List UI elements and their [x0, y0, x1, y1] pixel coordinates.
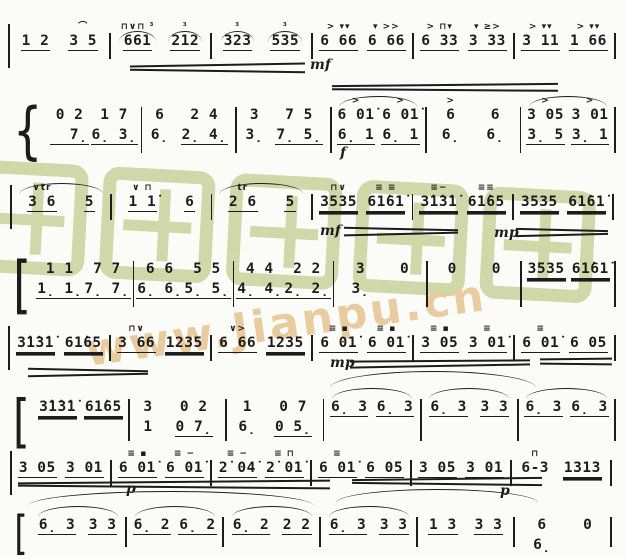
note-numbers: 3 01: [65, 460, 104, 478]
articulation-mark: ≡ ▪: [127, 449, 147, 460]
note-group: > ⊓▾6 33: [420, 22, 459, 51]
note-numbers: 6̣ 3: [329, 517, 367, 535]
measure: ∨tr3 65: [12, 183, 111, 212]
note-numbers: 6̣ 3: [570, 399, 608, 417]
note-group: 66̣: [532, 506, 552, 554]
music-system: {0 2 7̣1 76̣ 3̣66̣2 42̣ 4̣33̣7 57̣ 5̣>6 …: [8, 96, 616, 162]
measure: 6 66̣ 6̣5 55̣ 5̣: [134, 250, 232, 299]
note-numbers: 3 66: [117, 335, 156, 353]
note-numbers: 5: [284, 194, 295, 212]
measure: 3 053 01: [412, 449, 510, 478]
measure: 6̣ 33 3: [321, 506, 416, 535]
articulation-mark: ≡ ▪: [376, 324, 396, 335]
note-numbers-lower-voice: 4̣ 4̣: [236, 281, 283, 299]
articulation-mark: ≡≡: [478, 183, 495, 194]
measure: 33̣7 57̣ 5̣: [237, 96, 330, 145]
crescendo-line: [332, 83, 558, 87]
note-group: ▾ ≥>3 33: [468, 22, 507, 51]
note-numbers: 61̇61̇: [567, 194, 606, 212]
note-group: ≡3 01̇: [468, 324, 507, 353]
note-group: 61̇61̇: [567, 183, 606, 212]
note-numbers: 2 4: [189, 107, 219, 124]
note-numbers: 6 01̇: [381, 107, 420, 124]
articulation-mark: ≡−: [430, 183, 447, 194]
measure: 3̇1̇3̇1̇61̇65: [10, 324, 109, 353]
measure: ⊓∨3535≡ ≡61̇61̇: [313, 183, 412, 212]
note-numbers: 2 2: [282, 517, 312, 535]
measure: >66̣66̣: [427, 96, 520, 144]
note-group: ∨>6 66: [218, 324, 257, 353]
note-numbers: 2 2: [292, 261, 322, 278]
note-numbers: 6: [184, 194, 195, 212]
measure: 6̣ 33 3: [30, 506, 125, 535]
note-numbers: 6 33: [420, 33, 459, 51]
note-numbers: 6̣ 2: [232, 517, 270, 535]
note-group: 33̣: [350, 250, 370, 298]
measure: 3̇1̇3̇1̇61̇65: [33, 388, 129, 417]
note-numbers: 6 01̇: [337, 107, 376, 124]
measure: ≡ ▪3 05≡3 01̇: [414, 324, 513, 353]
measure: 353561̇61̇: [522, 250, 614, 279]
note-group: ³323: [223, 22, 253, 51]
note-group: ⊓∨3535: [319, 183, 358, 212]
note-numbers: 1 3: [428, 517, 458, 535]
note-numbers: 3 05: [420, 335, 459, 353]
note-numbers: 1 66: [569, 33, 608, 51]
note-numbers-lower-voice: 6̣: [485, 127, 505, 144]
note-numbers: 3 01: [571, 107, 610, 124]
note-group: ⊓6-3: [520, 449, 550, 477]
note-group: 3535: [527, 250, 566, 279]
articulation-mark: ⊓∨: [128, 324, 144, 335]
note-numbers-lower-voice: 3̣ 5: [526, 127, 564, 145]
note-numbers: 5: [84, 194, 95, 212]
note-group: 2 42̣ 4̣: [181, 96, 228, 145]
measure: 6̣ 22 2: [224, 506, 319, 535]
note-group: ∨ ⊓1 1̇: [128, 183, 158, 212]
note-group: ≡ ≡61̇61̇: [366, 183, 405, 212]
note-numbers: 1235: [165, 335, 204, 353]
note-numbers-lower-voice: 7̣: [50, 127, 88, 145]
measure: ≡6 01̇6 05: [312, 449, 410, 478]
note-group: 6: [184, 183, 195, 212]
note-group: ≡6 01̇: [521, 324, 560, 353]
barline: [610, 517, 612, 547]
note-numbers: 0: [582, 517, 593, 534]
note-numbers: 6̣ 3: [429, 399, 467, 417]
articulation-mark: ≡ ≡: [375, 183, 396, 194]
note-numbers: 2̇ 01̇: [265, 460, 304, 478]
note-group: 0: [447, 250, 458, 278]
note-group: 33̣: [244, 96, 264, 144]
note-numbers: 6 01̇: [318, 460, 357, 478]
system-bracket: [: [13, 392, 30, 450]
note-numbers: 6̣ 2: [133, 517, 171, 535]
articulation-mark: ≡ ▪: [329, 324, 349, 335]
note-group: 3̇1̇3̇1̇: [16, 324, 55, 353]
articulation-mark: ∨>: [229, 324, 246, 335]
note-group: 0 70 5̣: [274, 388, 312, 437]
note-group: 66̣: [485, 96, 505, 144]
dynamic-mark: p: [126, 482, 136, 496]
measure: > ▾▾3 11> ▾▾1 66: [515, 22, 614, 51]
measure: ≡6 01̇6 05: [515, 324, 614, 353]
note-group: 5 55̣ 5̣: [183, 250, 230, 299]
measure: 4 44̣ 4̣2 22̣ 2̣: [234, 250, 332, 299]
measure: tr2 65: [212, 183, 311, 212]
note-numbers: 0: [491, 261, 502, 278]
note-group: 3535: [520, 183, 559, 212]
system-bracket: [: [14, 510, 27, 556]
note-group: ▾ >>6 66: [367, 22, 406, 51]
note-numbers: 61̇65: [467, 194, 506, 212]
note-numbers: 1313: [563, 460, 602, 478]
measure: > ▾▾6 66▾ >>6 66: [313, 22, 412, 51]
note-numbers: 6: [536, 517, 547, 534]
note-numbers-lower-voice: 7̣ 7̣: [83, 281, 130, 299]
barline: [610, 460, 612, 486]
note-group: 1235: [266, 324, 305, 353]
note-group: 3 01: [465, 449, 504, 478]
note-group: ⊓∨3 66: [117, 324, 156, 353]
note-numbers: 3: [142, 399, 153, 416]
measure: 33̣0: [334, 250, 426, 298]
note-group: 61̇65: [64, 324, 103, 353]
note-numbers-lower-voice: 3̣: [350, 281, 370, 298]
articulation-mark: ▾ ≥>: [474, 22, 501, 33]
measure: > ⊓▾6 33▾ ≥>3 33: [414, 22, 513, 51]
note-numbers-lower-voice: 5̣ 5̣: [183, 281, 230, 299]
articulation-mark: ≡: [333, 449, 342, 460]
measure: ⊓6-31313: [512, 449, 610, 478]
note-numbers: 61̇65: [84, 399, 123, 417]
note-numbers-lower-voice: 6̣: [441, 127, 461, 144]
note-numbers: 4 4: [245, 261, 275, 278]
note-numbers: 6 6: [145, 261, 175, 278]
note-numbers-lower-voice: 6̣ 1: [337, 127, 375, 145]
note-group: ≡ ▪6 01̇: [367, 324, 406, 353]
note-group: 3 3: [474, 506, 504, 535]
note-group: ⊓∨⊓ ³661: [121, 22, 155, 51]
note-group: ⌒3 5: [68, 22, 98, 51]
measure: 66̣0: [515, 506, 610, 554]
measure: 310 20 7̣: [130, 388, 226, 437]
note-numbers: 3535: [520, 194, 559, 212]
note-numbers: 6 66: [218, 335, 257, 353]
note-numbers: 3 01: [465, 460, 504, 478]
note-numbers: 61̇65: [64, 335, 103, 353]
dynamic-mark: mp: [330, 356, 355, 370]
measure: 0 2 7̣1 76̣ 3̣: [47, 96, 140, 145]
measure: ⊓∨⊓ ³661³212: [111, 22, 210, 51]
measure: ≡ −2̇ 04̇≡ ⊓2̇ 01̇: [212, 449, 310, 478]
note-numbers: 3 33: [468, 33, 507, 51]
note-group: ³212: [170, 22, 200, 51]
note-group: 6 66̣ 6̣: [136, 250, 183, 299]
note-numbers: 6̣ 3: [330, 399, 368, 417]
measure: 6̣ 36̣ 3: [519, 388, 615, 417]
measure: ³323³535: [212, 22, 311, 51]
note-group: 1313: [563, 449, 602, 478]
note-numbers-lower-voice: 6̣ 1: [381, 127, 419, 145]
measure: 6̣ 36̣ 3: [324, 388, 420, 417]
note-group: >66̣: [441, 96, 461, 144]
measure: ≡−3̇1̇3̇1̇≡≡61̇65: [413, 183, 512, 212]
note-numbers: 1 2: [21, 33, 51, 51]
note-numbers: 5 5: [192, 261, 222, 278]
note-numbers: 6̣ 2: [178, 517, 216, 535]
barline: [614, 399, 616, 441]
barline: [614, 107, 616, 153]
note-numbers: 2 6: [228, 194, 258, 212]
note-numbers: 6: [445, 107, 456, 124]
measure: ∨ ⊓1 1̇6: [112, 183, 211, 212]
note-numbers: 1 1̇: [128, 194, 158, 212]
measure: 353561̇61̇: [514, 183, 613, 212]
note-numbers: 3 05: [526, 107, 565, 124]
note-group: > ▾▾3 11: [521, 22, 560, 51]
articulation-mark: > ▾▾: [529, 22, 553, 33]
note-group: 1 2: [21, 22, 51, 51]
note-numbers-lower-voice: 3̣ 1: [571, 127, 609, 145]
note-group: ≡ −6 01̇: [165, 449, 204, 478]
note-numbers: 6 66: [367, 33, 406, 51]
note-numbers: 7 7: [92, 261, 122, 278]
note-group: 1235: [165, 324, 204, 353]
note-numbers: 3 3: [474, 517, 504, 535]
note-numbers: 6-3: [520, 460, 550, 477]
phrase-arc: [330, 371, 536, 388]
crescendo-line: [28, 373, 148, 377]
note-group: 3 05: [418, 449, 457, 478]
note-numbers: 0 2: [55, 107, 85, 124]
sheet-music-page: 歌谱简谱网 www.Jianpu.cn 1 2⌒3 5⊓∨⊓ ³661³212³…: [0, 0, 627, 559]
articulation-mark: ⌒: [78, 22, 88, 33]
system-bracket: {: [13, 100, 43, 162]
note-numbers: 2̇ 04̇: [218, 460, 257, 478]
articulation-mark: ⊓∨: [330, 183, 346, 194]
note-numbers: 6 01̇: [367, 335, 406, 353]
note-numbers-lower-voice: 0 7̣: [175, 419, 213, 437]
note-numbers: 7 5: [284, 107, 314, 124]
note-group: ³535: [270, 22, 300, 51]
measure: >3 053̣ 5>3 013̣ 1: [521, 96, 614, 145]
note-group: 3 05: [18, 449, 57, 478]
measure: 00: [428, 250, 520, 278]
articulation-mark: > ⊓▾: [427, 22, 453, 33]
articulation-mark: ≡: [483, 324, 492, 335]
note-numbers: 3: [355, 261, 366, 278]
note-numbers: 1: [242, 399, 253, 416]
note-numbers: 3535: [527, 261, 566, 279]
measure: ∨>6 661235: [212, 324, 311, 353]
barline: [612, 194, 614, 220]
note-group: ≡−3̇1̇3̇1̇: [419, 183, 458, 212]
note-numbers: 3 3: [379, 517, 409, 535]
note-numbers: 3: [249, 107, 260, 124]
note-group: 7 57̣ 5̣: [275, 96, 322, 145]
note-group: ≡6 01̇: [318, 449, 357, 478]
note-numbers: 6 01̇: [521, 335, 560, 353]
note-group: 61̇65: [84, 388, 123, 417]
note-numbers: 6̣ 3: [376, 399, 414, 417]
note-group: 1 76̣ 3̣: [91, 96, 138, 145]
note-numbers: 6: [490, 107, 501, 124]
note-numbers: 6 66: [319, 33, 358, 51]
note-numbers-lower-voice: 6̣ 3̣: [91, 127, 138, 145]
note-numbers: 61̇61̇: [571, 261, 610, 279]
note-numbers: 3 6: [27, 194, 57, 212]
note-group: ≡ ▪6 01̇: [118, 449, 157, 478]
dynamic-mark: mf: [320, 224, 341, 238]
barline: [614, 335, 616, 361]
note-group: 2 22̣ 2̣: [283, 250, 330, 299]
note-numbers-lower-voice: 6̣: [532, 537, 552, 554]
note-numbers-lower-voice: 1̣ 1̣: [36, 281, 83, 299]
measure: 6̣ 33 3: [422, 388, 518, 417]
measure: 1 33 3: [418, 506, 513, 535]
measure: 16̣0 70 5̣: [227, 388, 323, 437]
note-group: 1 3: [428, 506, 458, 535]
note-numbers: 0: [447, 261, 458, 278]
note-group: 7 77̣ 7̣: [83, 250, 130, 299]
note-group: > ▾▾1 66: [569, 22, 608, 51]
measure: >6 01̇6̣ 1>6 01̇6̣ 1: [332, 96, 425, 145]
note-numbers-lower-voice: 2̣ 2̣: [283, 281, 330, 299]
note-numbers-lower-voice: 1: [142, 419, 153, 436]
articulation-mark: ▾ >>: [373, 22, 400, 33]
note-numbers: 6̣ 3: [524, 399, 562, 417]
note-numbers: 3̇1̇3̇1̇: [38, 399, 77, 417]
note-group: 0 2 7̣: [50, 96, 88, 145]
note-numbers: 3 11: [521, 33, 560, 51]
dynamic-mark: mf: [310, 58, 331, 72]
note-numbers: 3 05: [18, 460, 57, 478]
note-group: 31: [142, 388, 153, 436]
note-group: 16̣: [237, 388, 257, 436]
note-numbers: 1 1: [45, 261, 75, 278]
note-numbers: 3535: [319, 194, 358, 212]
note-numbers: 6 05: [365, 460, 404, 478]
note-numbers-lower-voice: 6̣: [237, 419, 257, 436]
note-numbers: 3̇1̇3̇1̇: [16, 335, 55, 353]
articulation-mark: ⊓: [531, 449, 539, 460]
note-numbers: 6 05: [569, 335, 608, 353]
note-group: 0: [491, 250, 502, 278]
measure: 66̣2 42̣ 4̣: [142, 96, 235, 145]
note-numbers: 3 05: [418, 460, 457, 478]
note-numbers: 0 7: [278, 399, 308, 416]
note-group: 66̣: [150, 96, 170, 144]
note-numbers: 6: [154, 107, 165, 124]
system-bracket: [: [13, 254, 31, 316]
note-numbers: 1235: [266, 335, 305, 353]
note-numbers-lower-voice: 6̣: [150, 127, 170, 144]
note-numbers: 6 01̇: [165, 460, 204, 478]
dynamic-mark: p: [500, 484, 510, 498]
articulation-mark: ≡ ▪: [430, 324, 450, 335]
note-numbers: 3 3: [480, 399, 510, 417]
dynamic-mark: f: [340, 146, 346, 160]
articulation-mark: ≡: [536, 324, 545, 335]
music-system: ∨tr3 65∨ ⊓1 1̇6tr2 65⊓∨3535≡ ≡61̇61̇≡−3̇…: [10, 183, 614, 229]
note-group: 4 44̣ 4̣: [236, 250, 283, 299]
note-group: 0: [399, 250, 410, 278]
note-numbers: 1 7: [99, 107, 129, 124]
measure: 1 2⌒3 5: [10, 22, 109, 51]
measure: 3 053 01: [12, 449, 110, 478]
barline: [614, 261, 616, 307]
note-numbers: 6̣ 3: [38, 517, 76, 535]
crescendo-line: [332, 88, 558, 91]
note-numbers: 3 3: [88, 517, 118, 535]
articulation-mark: > ▾▾: [577, 22, 601, 33]
measure: ⊓∨3 661235: [111, 324, 210, 353]
articulation-mark: ≡ ⊓: [274, 449, 295, 460]
note-group: 0: [582, 506, 593, 534]
articulation-mark: ∨ ⊓: [132, 183, 153, 194]
music-system: [6̣ 33 36̣ 26̣ 26̣ 22 26̣ 33 31 33 366̣0: [12, 506, 612, 556]
note-numbers: 3̇1̇3̇1̇: [419, 194, 458, 212]
note-group: ≡ ▪3 05: [420, 324, 459, 353]
barline: [614, 33, 616, 59]
note-group: 3 01: [65, 449, 104, 478]
articulation-mark: ≡ −: [227, 449, 248, 460]
note-numbers-lower-voice: 2̣ 4̣: [181, 127, 228, 145]
note-group: 6 05: [569, 324, 608, 353]
note-group: > ▾▾6 66: [319, 22, 358, 51]
note-numbers: 0: [399, 261, 410, 278]
note-numbers: 3 5: [68, 33, 98, 51]
note-numbers: 0 2: [179, 399, 209, 416]
measure: ≡ ▪6 01̇≡ −6 01̇: [112, 449, 210, 478]
note-group: ≡≡61̇65: [467, 183, 506, 212]
articulation-mark: >: [447, 96, 456, 107]
note-numbers: 3 01̇: [468, 335, 507, 353]
note-numbers-lower-voice: 0 5̣: [274, 419, 312, 437]
note-group: ≡ ▪6 01̇: [319, 324, 358, 353]
articulation-mark: > ▾▾: [327, 22, 351, 33]
note-group: 0 20 7̣: [175, 388, 213, 437]
dynamic-mark: mp: [494, 226, 519, 240]
note-group: 3̇1̇3̇1̇: [38, 388, 77, 417]
music-system: [1 11̣ 1̣7 77̣ 7̣6 66̣ 6̣5 55̣ 5̣4 44̣ 4…: [10, 250, 616, 316]
music-system: [3̇1̇3̇1̇61̇65310 20 7̣16̣0 70 5̣6̣ 36̣ …: [10, 388, 616, 450]
note-numbers: 6 01̇: [319, 335, 358, 353]
note-numbers: 61̇61̇: [366, 194, 405, 212]
measure: 1 11̣ 1̣7 77̣ 7̣: [34, 250, 132, 299]
note-numbers-lower-voice: 6̣ 6̣: [136, 281, 183, 299]
note-numbers-lower-voice: 7̣ 5̣: [275, 127, 322, 145]
note-group: ≡ −2̇ 04̇: [218, 449, 257, 478]
note-group: 61̇61̇: [571, 250, 610, 279]
articulation-mark: ≡ −: [174, 449, 195, 460]
measure: 6̣ 26̣ 2: [127, 506, 222, 535]
note-group: 6 05: [365, 449, 404, 478]
note-numbers: 6 01̇: [118, 460, 157, 478]
measure: ≡ ▪6 01̇≡ ▪6 01̇: [313, 324, 412, 353]
crescendo-line: [130, 69, 305, 73]
note-group: 1 11̣ 1̣: [36, 250, 83, 299]
note-group: ≡ ⊓2̇ 01̇: [265, 449, 304, 478]
note-numbers-lower-voice: 3̣: [244, 127, 264, 144]
